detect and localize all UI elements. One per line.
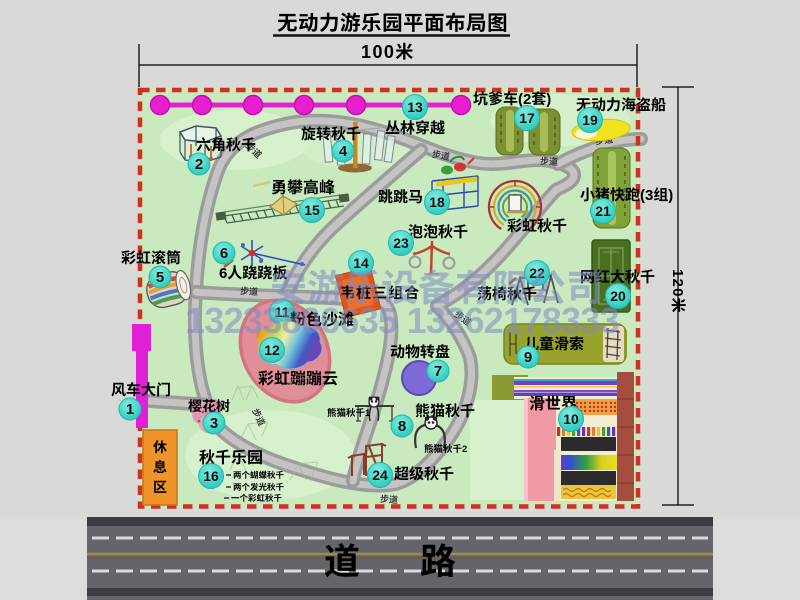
svg-text:120: 120 — [669, 269, 686, 298]
svg-text:17: 17 — [519, 110, 535, 126]
svg-text:5: 5 — [156, 269, 164, 286]
svg-text:14: 14 — [353, 255, 369, 271]
svg-text:1: 1 — [365, 408, 371, 419]
svg-text:4: 4 — [339, 143, 348, 160]
svg-text:): ) — [546, 91, 551, 108]
svg-text:2: 2 — [462, 444, 467, 455]
svg-text:18: 18 — [429, 194, 445, 210]
svg-text:16: 16 — [203, 468, 219, 484]
svg-text:9: 9 — [524, 349, 532, 366]
svg-text:13233806635 13262178333: 13233806635 13262178333 — [185, 300, 619, 341]
svg-text:): ) — [668, 187, 673, 204]
svg-text:24: 24 — [372, 467, 388, 483]
svg-text:19: 19 — [582, 112, 598, 128]
svg-text:7: 7 — [434, 363, 442, 380]
svg-text:21: 21 — [595, 203, 611, 219]
svg-text:23: 23 — [393, 235, 409, 251]
svg-text:13: 13 — [407, 99, 423, 115]
svg-text:8: 8 — [398, 418, 406, 435]
svg-text:15: 15 — [304, 202, 320, 218]
svg-text:10: 10 — [563, 411, 579, 427]
svg-text:3: 3 — [210, 415, 218, 432]
svg-text:(3: (3 — [640, 187, 653, 204]
svg-text:6: 6 — [219, 265, 227, 282]
svg-text:12: 12 — [264, 342, 280, 358]
svg-text:1: 1 — [126, 401, 134, 418]
svg-text:2: 2 — [195, 156, 203, 173]
svg-text:100: 100 — [361, 42, 395, 62]
svg-text:6: 6 — [220, 245, 228, 262]
